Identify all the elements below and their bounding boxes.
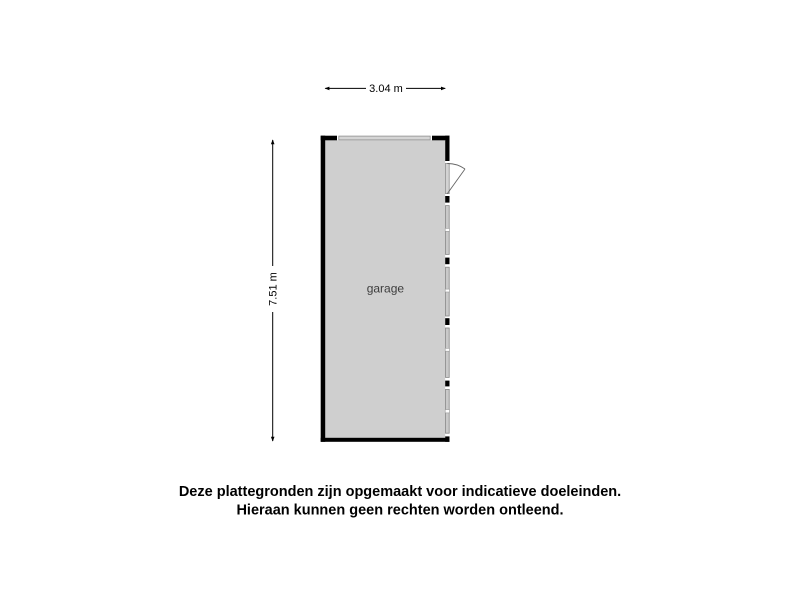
svg-text:7.51 m: 7.51 m bbox=[267, 272, 279, 306]
svg-text:3.04 m: 3.04 m bbox=[369, 83, 403, 95]
svg-text:Hieraan kunnen geen rechten wo: Hieraan kunnen geen rechten worden ontle… bbox=[236, 502, 563, 518]
svg-text:Deze plattegronden zijn opgema: Deze plattegronden zijn opgemaakt voor i… bbox=[179, 484, 621, 500]
svg-text:garage: garage bbox=[367, 282, 405, 296]
